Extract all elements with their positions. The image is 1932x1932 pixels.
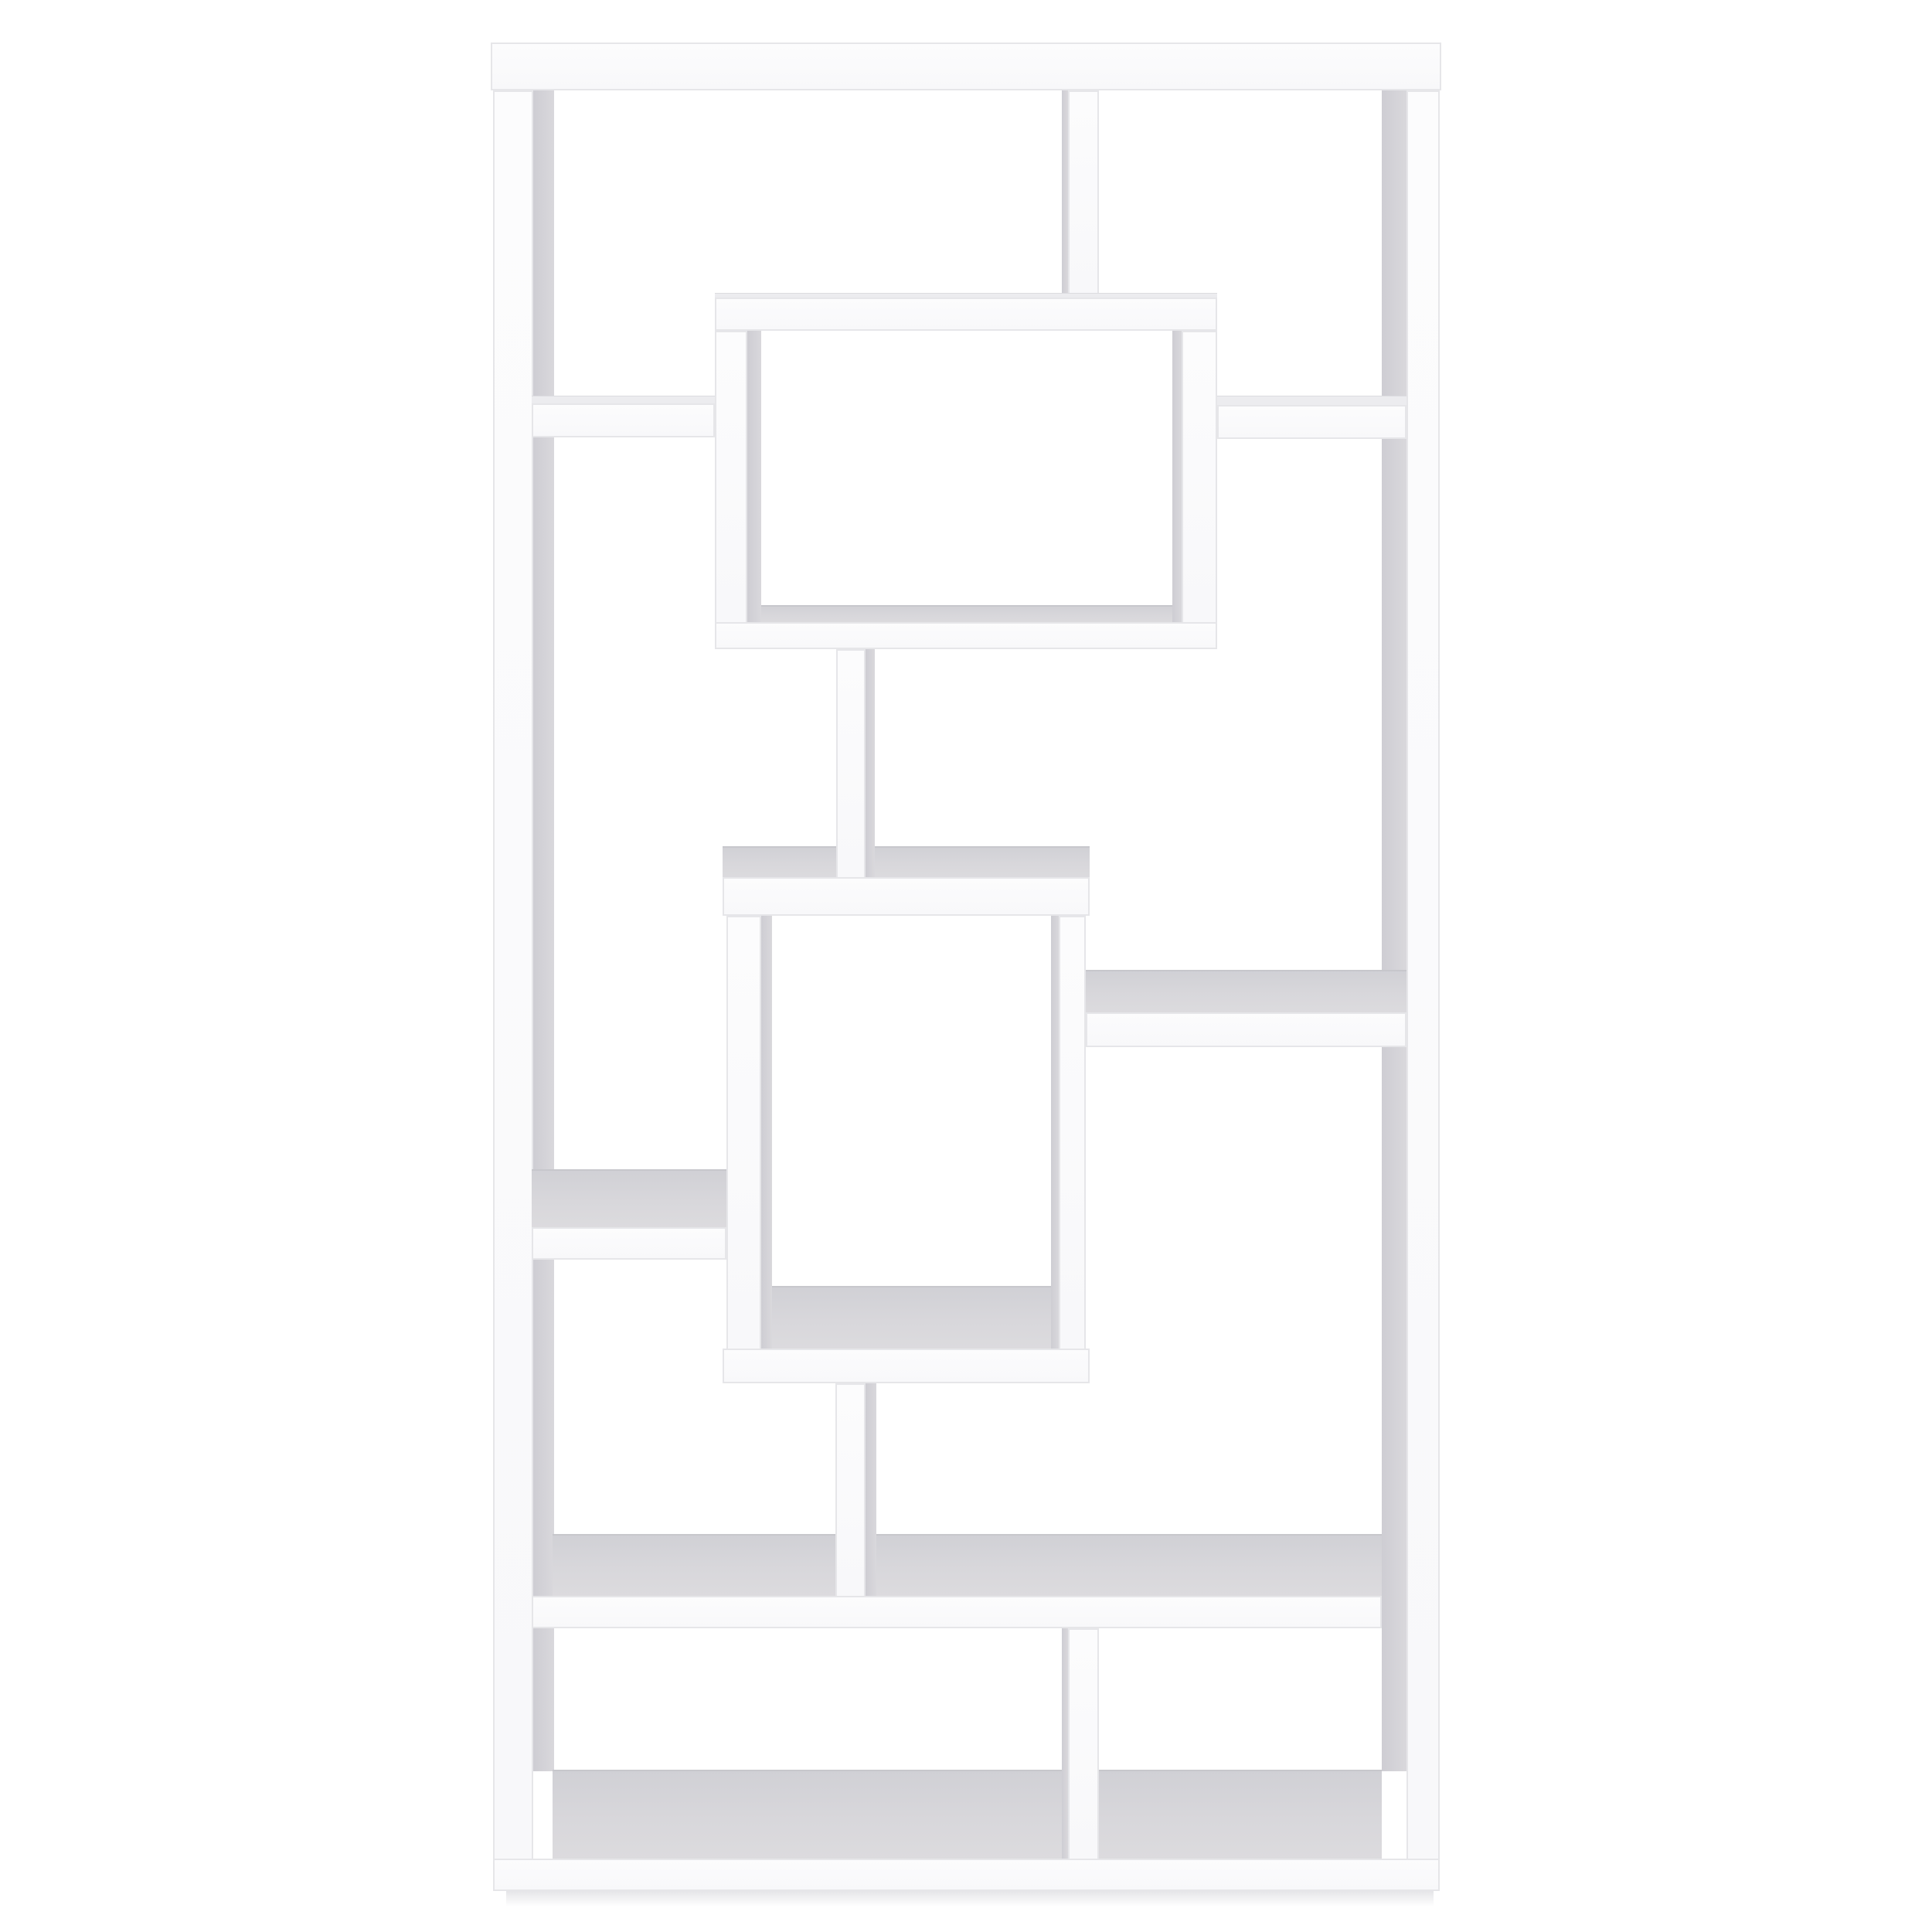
- middle-box-top: [723, 877, 1090, 916]
- upper-box-left-side: [715, 331, 747, 624]
- top-divider: [1068, 90, 1099, 299]
- full-shelf-surface: [553, 1534, 1382, 1597]
- mid-left-shelf-surface: [532, 1169, 726, 1229]
- left-panel: [493, 90, 533, 1860]
- upper-left-shelf: [532, 403, 715, 437]
- middle-box-right-side: [1059, 916, 1086, 1350]
- upper-box-right-shade: [1172, 331, 1182, 624]
- ground-shadow: [506, 1891, 1434, 1906]
- upper-box-bottom: [715, 622, 1217, 649]
- middle-box-bottom: [723, 1349, 1090, 1383]
- upper-left-shelf-lip: [532, 396, 715, 403]
- upper-box-top: [715, 298, 1217, 331]
- mid-right-shelf-surface: [1086, 970, 1406, 1014]
- middle-box-top-surface: [723, 846, 1090, 879]
- right-panel-inner-shade: [1382, 90, 1406, 1771]
- middle-box-floor: [772, 1286, 1051, 1350]
- center-stub-lower-shade: [866, 1383, 876, 1597]
- center-stub-upper: [836, 649, 866, 879]
- middle-box-right-shade: [1051, 916, 1059, 1350]
- bottom-divider-inner-edge: [1062, 1628, 1068, 1860]
- top-board: [491, 43, 1441, 90]
- upper-right-shelf-lip: [1217, 396, 1406, 405]
- upper-right-shelf: [1217, 405, 1406, 439]
- right-panel: [1406, 90, 1440, 1860]
- center-stub-upper-shade: [866, 649, 875, 879]
- upper-box-left-shade: [747, 331, 761, 624]
- upper-box-right-side: [1182, 331, 1217, 624]
- middle-box-left-side: [726, 916, 761, 1350]
- middle-box-left-shade: [761, 916, 772, 1350]
- left-panel-inner-shade: [533, 90, 554, 1771]
- full-shelf: [532, 1596, 1382, 1628]
- bottom-compartment-floor: [553, 1770, 1382, 1860]
- bottom-divider: [1068, 1628, 1099, 1860]
- top-divider-inner-edge: [1062, 90, 1068, 299]
- center-stub-lower: [835, 1383, 866, 1597]
- bottom-board: [493, 1859, 1440, 1891]
- mid-left-shelf: [532, 1227, 726, 1260]
- mid-right-shelf: [1086, 1012, 1406, 1047]
- bookcase-product-photo: [0, 0, 1932, 1932]
